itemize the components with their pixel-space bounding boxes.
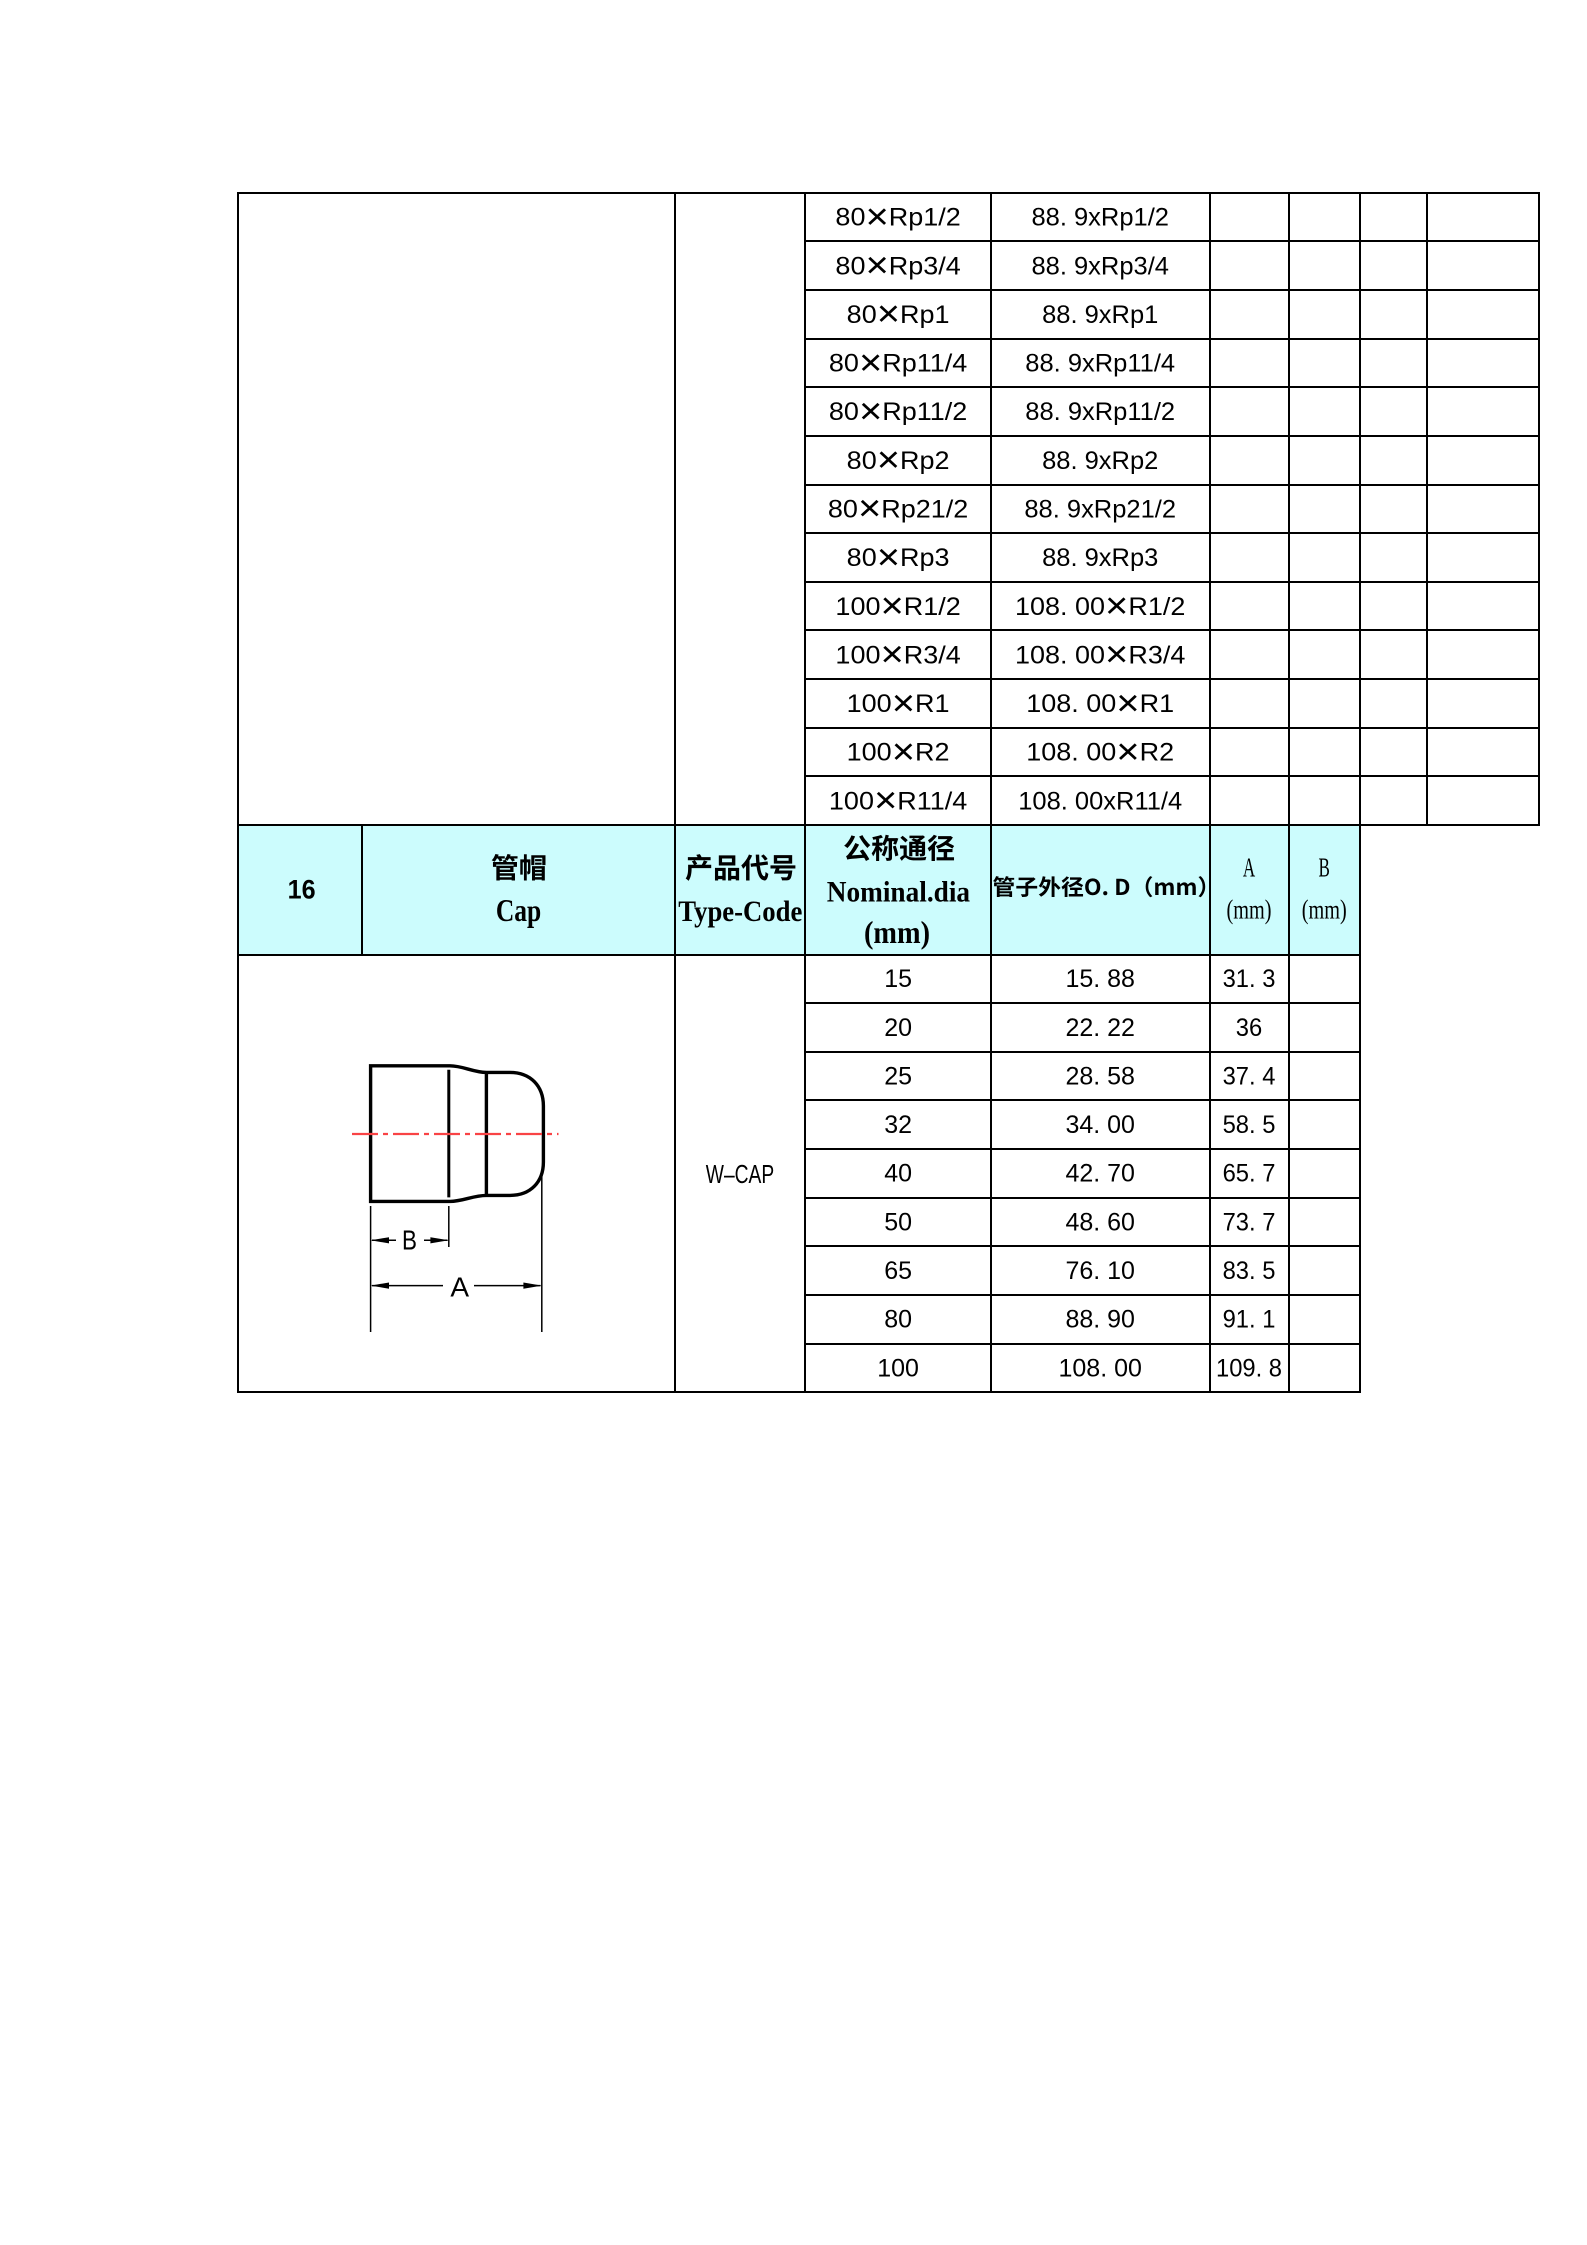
svg-text:108. 00xR11/4: 108. 00xR11/4 [1018,788,1182,816]
svg-text:88. 9xRp3: 88. 9xRp3 [1042,544,1158,572]
svg-text:Nominal.dia: Nominal.dia [827,875,970,908]
svg-text:W–CAP: W–CAP [706,1159,774,1189]
svg-text:108. 00×R3/4: 108. 00×R3/4 [1015,634,1185,675]
svg-text:88. 90: 88. 90 [1065,1306,1135,1334]
svg-text:A: A [1243,853,1256,883]
svg-text:80×Rp1/2: 80×Rp1/2 [835,196,960,237]
svg-text:100×R1: 100×R1 [847,683,950,724]
svg-text:15. 88: 15. 88 [1065,965,1135,993]
svg-text:22. 22: 22. 22 [1065,1014,1135,1042]
svg-text:88. 9xRp1: 88. 9xRp1 [1042,301,1158,329]
svg-text:80×Rp3/4: 80×Rp3/4 [835,245,960,286]
svg-text:40: 40 [884,1160,912,1188]
svg-text:28. 58: 28. 58 [1065,1062,1135,1090]
svg-text:88. 9xRp1/2: 88. 9xRp1/2 [1031,204,1169,232]
svg-text:16: 16 [288,874,316,905]
svg-text:100: 100 [877,1354,919,1382]
svg-text:88. 9xRp11/2: 88. 9xRp11/2 [1025,398,1175,426]
svg-text:34. 00: 34. 00 [1065,1111,1135,1139]
svg-text:100×R2: 100×R2 [847,731,950,772]
svg-text:31. 3: 31. 3 [1223,966,1276,994]
svg-text:80×Rp3: 80×Rp3 [847,537,950,578]
svg-text:80×Rp2: 80×Rp2 [847,439,950,480]
svg-text:(mm): (mm) [1227,896,1272,925]
svg-text:42. 70: 42. 70 [1065,1160,1135,1188]
svg-text:109. 8: 109. 8 [1216,1355,1282,1383]
svg-text:100×R11/4: 100×R11/4 [829,780,967,821]
svg-text:25: 25 [884,1062,912,1090]
svg-text:88. 9xRp21/2: 88. 9xRp21/2 [1024,496,1176,524]
svg-text:48. 60: 48. 60 [1065,1208,1135,1236]
svg-text:36: 36 [1236,1014,1262,1042]
svg-text:80: 80 [884,1306,912,1334]
svg-text:100×R1/2: 100×R1/2 [835,585,960,626]
svg-text:80×Rp11/2: 80×Rp11/2 [829,391,967,432]
svg-text:65: 65 [884,1257,912,1285]
svg-text:73. 7: 73. 7 [1223,1209,1276,1237]
svg-text:Cap: Cap [496,893,541,928]
svg-text:65. 7: 65. 7 [1223,1160,1276,1188]
svg-text:32: 32 [884,1111,912,1139]
svg-text:100×R3/4: 100×R3/4 [835,634,960,675]
svg-text:20: 20 [884,1014,912,1042]
svg-text:50: 50 [884,1208,912,1236]
svg-text:88. 9xRp2: 88. 9xRp2 [1042,447,1158,475]
svg-text:(mm): (mm) [1302,896,1347,925]
svg-text:58. 5: 58. 5 [1223,1112,1276,1140]
svg-text:88. 9xRp11/4: 88. 9xRp11/4 [1025,350,1175,378]
svg-text:108. 00×R2: 108. 00×R2 [1026,731,1174,772]
svg-text:A: A [450,1271,469,1302]
svg-text:80×Rp1: 80×Rp1 [847,293,950,334]
svg-text:(mm): (mm) [864,914,930,950]
svg-text:83. 5: 83. 5 [1223,1257,1276,1285]
svg-text:108. 00×R1/2: 108. 00×R1/2 [1015,585,1185,626]
svg-text:108. 00: 108. 00 [1058,1354,1141,1382]
svg-text:B: B [402,1225,417,1256]
svg-text:15: 15 [884,965,912,993]
svg-text:80×Rp11/4: 80×Rp11/4 [829,342,967,383]
svg-text:80×Rp21/2: 80×Rp21/2 [828,488,968,529]
svg-text:88. 9xRp3/4: 88. 9xRp3/4 [1031,253,1169,281]
svg-text:91. 1: 91. 1 [1223,1306,1276,1334]
svg-text:B: B [1319,853,1330,883]
svg-text:76. 10: 76. 10 [1065,1257,1135,1285]
svg-text:Type-Code: Type-Code [678,895,802,928]
svg-text:108. 00×R1: 108. 00×R1 [1026,683,1174,724]
svg-text:37. 4: 37. 4 [1223,1063,1276,1091]
